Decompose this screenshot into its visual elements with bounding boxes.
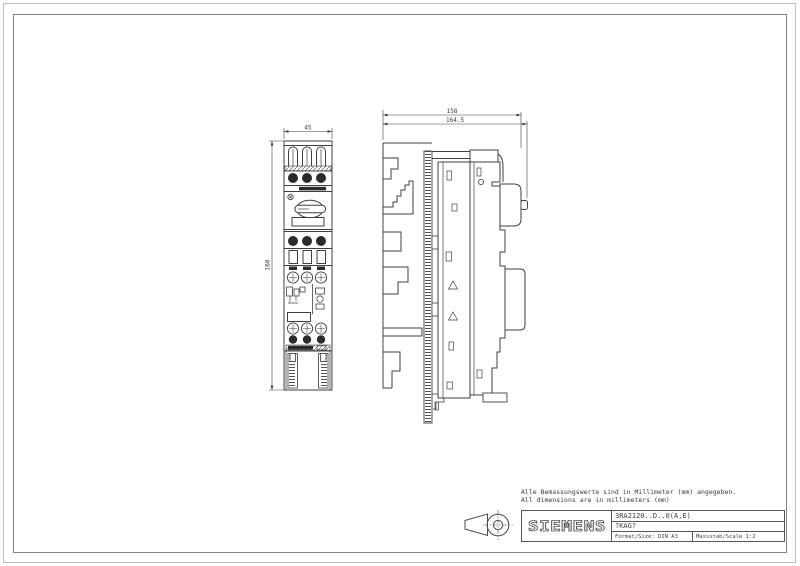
front-rating-label	[292, 218, 324, 227]
front-terminal-screws-top	[288, 173, 326, 183]
technical-drawing: 45 160	[0, 0, 800, 566]
dimension-label: 160	[265, 259, 272, 270]
front-width-dimension: 45	[284, 125, 332, 139]
title-block: SIEMENS 3RA2120..D..0(A,E) ?KAG? Format/…	[521, 510, 785, 542]
siemens-logo: SIEMENS	[522, 511, 612, 541]
scale-cell: Massstab/Scale 1:2	[693, 532, 784, 542]
projection-symbol-icon	[465, 510, 513, 540]
side-view: 158 164.5	[383, 108, 528, 423]
siemens-logo-text: SIEMENS	[528, 519, 606, 535]
dimension-label: 164.5	[446, 117, 464, 124]
title-block-meta-row: Format/Size: DIN A3 Massstab/Scale 1:2	[612, 531, 784, 542]
dimension-label: 45	[304, 125, 312, 132]
drawing-sheet: 45 160	[0, 0, 800, 566]
reference-code: ?KAG?	[612, 522, 784, 531]
side-body	[438, 150, 507, 402]
title-block-right: 3RA2120..D..0(A,E) ?KAG? Format/Size: DI…	[612, 511, 784, 541]
front-terminal-screws-mid	[288, 236, 326, 246]
front-view: 45 160	[265, 125, 333, 390]
dimension-notes: Alle Bemassungswerte sind in Millimeter …	[521, 489, 736, 504]
note-line-english: All dimensions are in millimeters (mm)	[521, 497, 736, 505]
order-number: 3RA2120..D..0(A,E)	[612, 511, 784, 522]
front-height-dimension: 160	[265, 141, 284, 390]
side-rotary-drive	[500, 184, 528, 226]
side-knob-cylinder	[505, 269, 525, 330]
format-cell: Format/Size: DIN A3	[612, 532, 693, 542]
dimension-label: 158	[447, 108, 458, 115]
